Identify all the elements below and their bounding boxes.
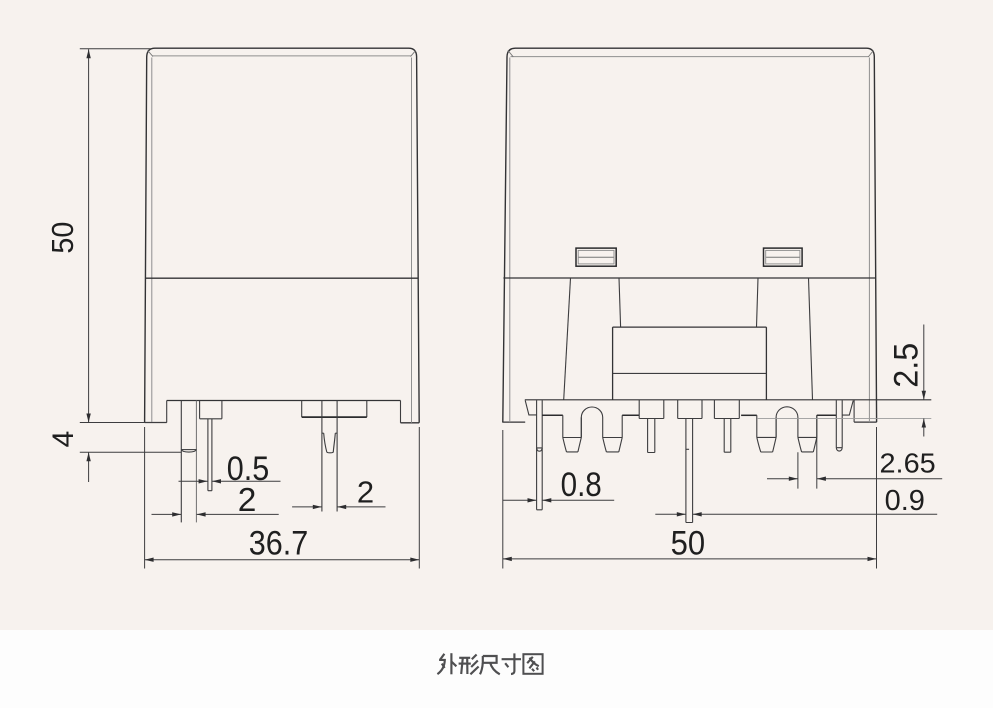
svg-text:36.7: 36.7: [249, 525, 309, 563]
svg-text:0.9: 0.9: [885, 485, 925, 517]
svg-text:4: 4: [47, 431, 80, 448]
svg-text:2.5: 2.5: [888, 343, 926, 388]
svg-text:2.65: 2.65: [880, 448, 936, 479]
svg-text:2: 2: [238, 482, 257, 519]
svg-text:0.8: 0.8: [561, 466, 602, 504]
svg-text:50: 50: [45, 222, 80, 254]
svg-text:50: 50: [671, 525, 706, 563]
svg-text:2: 2: [357, 475, 374, 510]
